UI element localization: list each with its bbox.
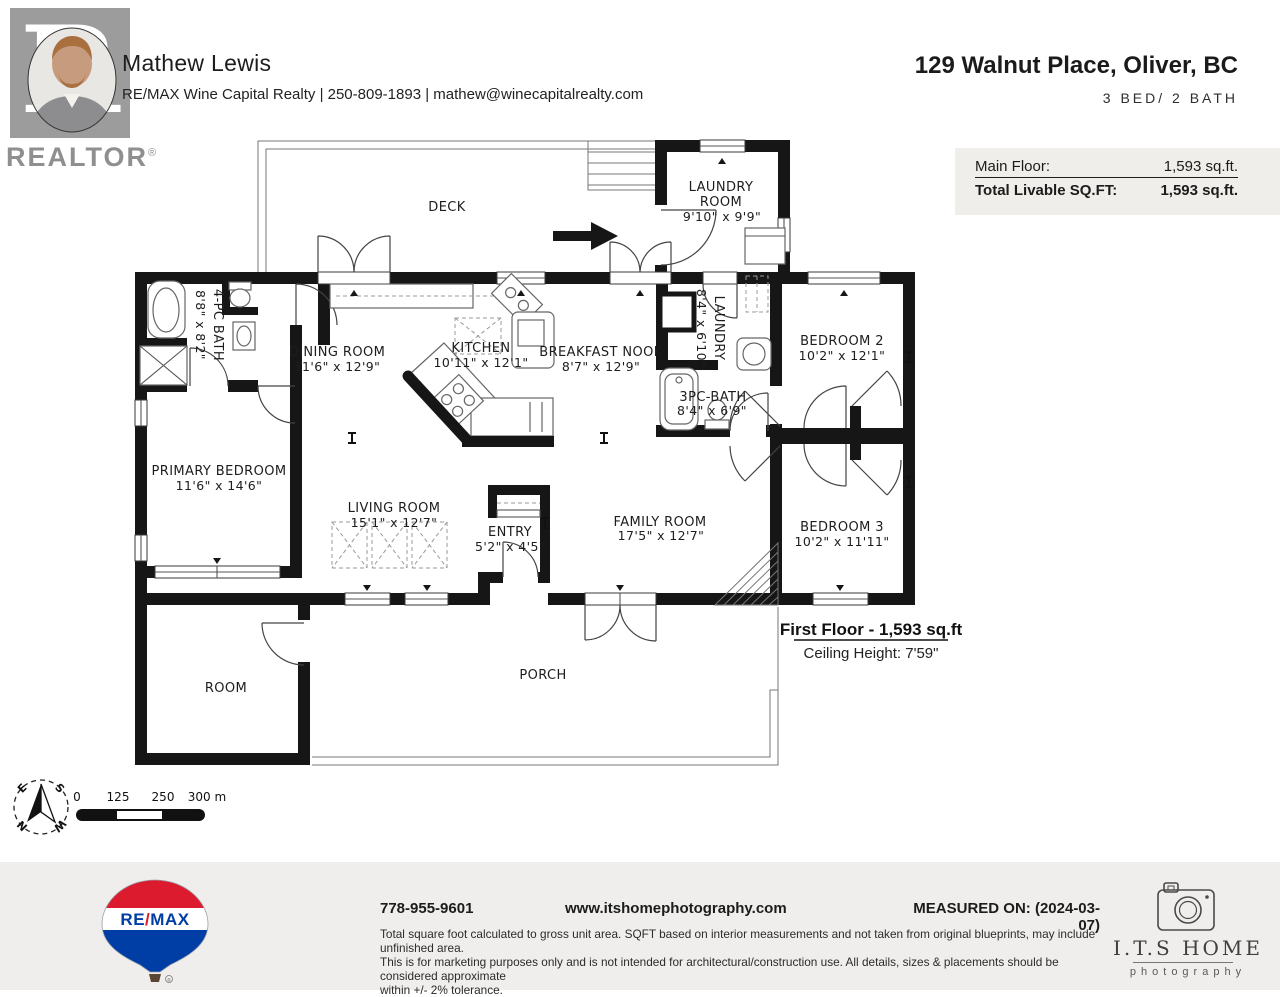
agent-contact-line: RE/MAX Wine Capital Realty | 250-809-189… xyxy=(122,86,643,103)
room-label-porch: PORCH xyxy=(519,668,566,683)
footer-phone: 778-955-9601 xyxy=(380,900,473,917)
its-home-divider xyxy=(1133,962,1233,963)
room-label-room: ROOM xyxy=(205,681,247,696)
svg-text:8'4" x 6'9": 8'4" x 6'9" xyxy=(677,403,747,418)
disclaimer-line: This is for marketing purposes only and … xyxy=(380,955,1110,983)
room-label-laundry-closet: LAUNDRY xyxy=(711,296,726,361)
porch-outline xyxy=(312,607,778,765)
shower xyxy=(140,346,187,385)
realtor-logo: R xyxy=(10,8,136,140)
svg-text:8'8" x 8'2": 8'8" x 8'2" xyxy=(193,290,208,360)
svg-text:5'2" x 4'5": 5'2" x 4'5" xyxy=(475,539,545,554)
compass-icon: E S N W xyxy=(14,780,69,835)
room-label-bedroom3: BEDROOM 3 xyxy=(800,520,884,535)
room-label-living: LIVING ROOM xyxy=(348,501,441,516)
svg-text:125: 125 xyxy=(107,790,130,804)
footer-website[interactable]: www.itshomephotography.com xyxy=(565,900,787,917)
remax-balloon-logo: RE/MAX ® xyxy=(95,876,220,988)
svg-text:®: ® xyxy=(167,977,171,984)
laundry-room-washer xyxy=(745,228,785,264)
room-label-primary: PRIMARY BEDROOM xyxy=(152,464,287,479)
balloon-basket xyxy=(149,974,161,982)
room-label-nook: BREAKFAST NOOK xyxy=(539,345,662,360)
svg-text:8'7" x 12'9": 8'7" x 12'9" xyxy=(562,359,640,374)
svg-text:250: 250 xyxy=(152,790,175,804)
room-label-laundry-room: LAUNDRY xyxy=(689,180,754,195)
svg-text:ROOM: ROOM xyxy=(700,195,742,210)
dishwasher xyxy=(518,320,544,346)
floor-note-ceiling: Ceiling Height: 7'59" xyxy=(804,645,939,662)
room-label-deck: DECK xyxy=(428,200,466,215)
svg-text:8'4" x 6'10": 8'4" x 6'10" xyxy=(694,289,709,367)
room-label-kitchen: KITCHEN xyxy=(451,341,510,356)
room-label-entry: ENTRY xyxy=(488,525,532,540)
svg-text:300 m: 300 m xyxy=(188,790,226,804)
room-label-dining: DINING ROOM xyxy=(289,345,385,360)
its-home-wordmark: I.T.S HOME xyxy=(1108,936,1268,960)
its-home-subtitle: photography xyxy=(1108,966,1268,978)
washer xyxy=(660,294,694,330)
svg-text:10'11" x 12'1": 10'11" x 12'1" xyxy=(434,355,529,370)
toilet-tank xyxy=(705,420,729,429)
remax-wordmark: RE/MAX xyxy=(120,910,189,929)
room-label-4pc-bath: 4-PC BATH xyxy=(210,289,225,361)
agent-name: Mathew Lewis xyxy=(122,50,271,77)
floor-plan: DECK LAUNDRY ROOM 9'10" x 9'9" 4-PC BATH… xyxy=(0,135,1280,840)
floor-note: First Floor - 1,593 sq.ft Ceiling Height… xyxy=(780,620,963,662)
svg-text:15'1" x 12'7": 15'1" x 12'7" xyxy=(351,515,438,530)
svg-text:9'10" x 9'9": 9'10" x 9'9" xyxy=(683,209,761,224)
svg-text:11'6" x 12'9": 11'6" x 12'9" xyxy=(294,359,381,374)
svg-text:10'2" x 11'11": 10'2" x 11'11" xyxy=(795,534,890,549)
camera-icon xyxy=(1150,878,1225,936)
floorplan-flyer: { "header": { "agent_name": "Mathew Lewi… xyxy=(0,0,1280,990)
property-address: 129 Walnut Place, Oliver, BC xyxy=(915,52,1238,80)
svg-text:11'6" x 14'6": 11'6" x 14'6" xyxy=(176,478,263,493)
entry-closet xyxy=(497,503,540,517)
svg-text:10'2" x 12'1": 10'2" x 12'1" xyxy=(799,348,886,363)
direction-arrow xyxy=(553,222,618,250)
footer-disclaimer: Total square foot calculated to gross un… xyxy=(380,927,1110,997)
disclaimer-line: within +/- 2% tolerance. xyxy=(380,983,1110,997)
svg-text:0: 0 xyxy=(73,790,81,804)
sink xyxy=(743,343,765,365)
floor-note-title: First Floor - 1,593 sq.ft xyxy=(780,620,963,639)
bed-bath-summary: 3 BED/ 2 BATH xyxy=(1103,90,1238,106)
toilet-bowl xyxy=(230,289,250,307)
disclaimer-line: Total square foot calculated to gross un… xyxy=(380,927,1110,955)
room-label-bedroom2: BEDROOM 2 xyxy=(800,334,884,349)
svg-text:17'5" x 12'7": 17'5" x 12'7" xyxy=(618,528,705,543)
avatar xyxy=(28,28,116,132)
scale-bar: 0 125 250 300 m xyxy=(73,790,226,821)
